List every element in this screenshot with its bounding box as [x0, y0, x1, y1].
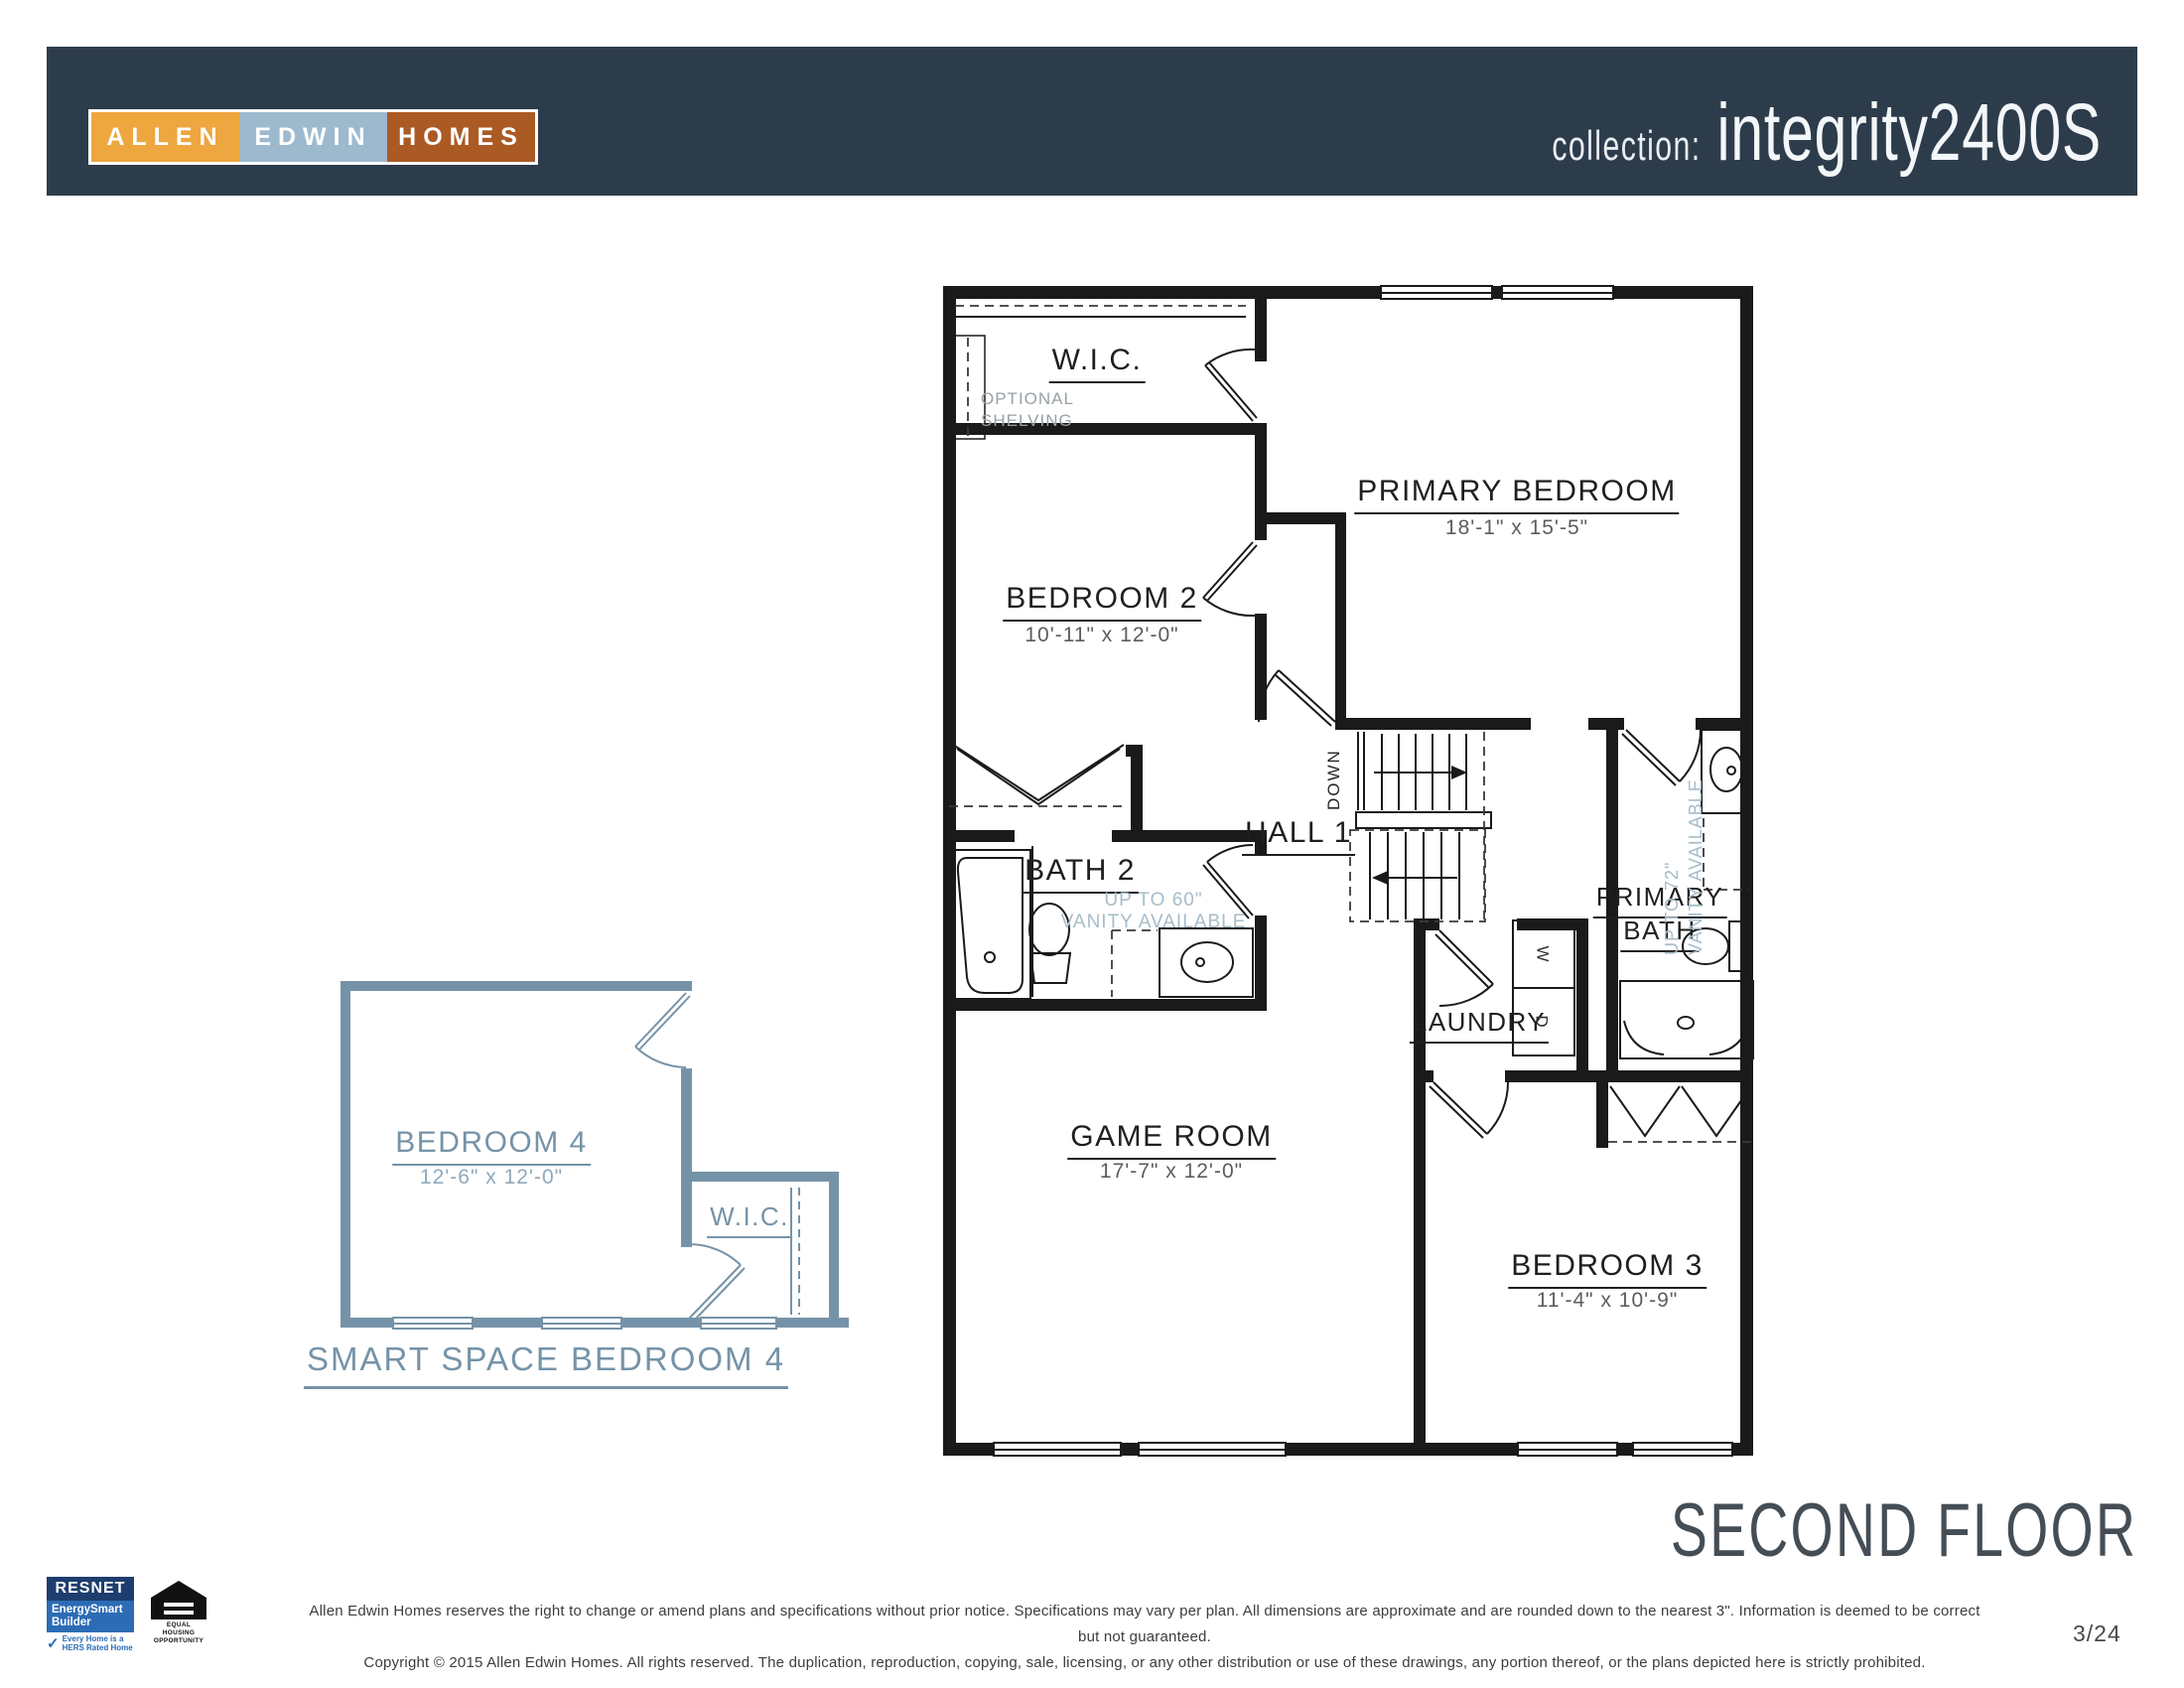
resnet-tag2: HERS Rated Home	[63, 1643, 133, 1652]
smart-space-wall	[829, 1182, 839, 1318]
bath2-tub-inner	[958, 858, 1023, 993]
wall	[1131, 745, 1143, 842]
wall	[943, 286, 956, 1456]
wall	[1596, 1082, 1608, 1148]
washer-label: W	[1533, 945, 1553, 962]
wall	[1414, 1070, 1433, 1082]
wall	[1255, 614, 1267, 720]
room-label-game-room: GAME ROOM	[1067, 1120, 1276, 1160]
wall	[943, 830, 1015, 842]
bath2-vanity-note-line2: VANITY AVAILABLE	[1061, 912, 1247, 933]
equal-housing-logo: EQUAL HOUSING OPPORTUNITY	[151, 1581, 206, 1645]
bath2-tub	[950, 850, 1030, 999]
page-number: 3/24	[2073, 1620, 2121, 1647]
equal-bar	[164, 1611, 194, 1615]
bath2-vanity-note-line1: UP TO 60"	[1104, 890, 1202, 912]
room-label-smart-wic: W.I.C.	[707, 1201, 792, 1238]
room-label-bedroom4: BEDROOM 4	[392, 1126, 591, 1166]
primary-bath-vanity-note-line2: VANITY AVAILABLE	[1686, 767, 1706, 955]
bedroom3-closet-doors	[1610, 1086, 1751, 1136]
room-label-primary-bedroom: PRIMARY BEDROOM	[1354, 475, 1679, 514]
equal-housing-icon-body	[151, 1598, 206, 1619]
wall	[1576, 930, 1588, 1070]
equal-housing-line2: OPPORTUNITY	[154, 1637, 204, 1644]
window	[1138, 1442, 1287, 1457]
wall	[1335, 718, 1486, 730]
bath2-tub-drain	[985, 952, 995, 962]
floor-plan-fixtures	[0, 0, 2184, 1688]
disclaimer-line2: Copyright © 2015 Allen Edwin Homes. All …	[304, 1650, 1985, 1676]
door-primary-bedroom	[1259, 670, 1335, 726]
door-smart-wic	[689, 1244, 745, 1322]
smart-space-window	[700, 1317, 777, 1330]
window	[993, 1442, 1122, 1457]
window	[1380, 285, 1493, 300]
room-dims-primary-bedroom: 18'-1" x 15'-5"	[1445, 516, 1588, 540]
door-bedroom3	[1430, 1082, 1508, 1138]
door-bath2	[1203, 845, 1253, 918]
equal-housing-text: EQUAL HOUSING OPPORTUNITY	[151, 1621, 206, 1645]
room-dims-bedroom4: 12'-6" x 12'-0"	[420, 1166, 563, 1190]
wall	[1255, 915, 1267, 1001]
primary-bath-shower-curves	[1624, 1021, 1749, 1055]
bath2-optional-vanity	[1112, 930, 1158, 997]
wall	[1414, 1082, 1426, 1456]
equal-housing-icon	[151, 1581, 206, 1598]
bath2-faucet	[1196, 958, 1204, 966]
smart-space-wall	[681, 1068, 692, 1174]
primary-bath-shower-drain	[1678, 1017, 1694, 1029]
bath2-toilet-tank	[1030, 953, 1070, 983]
footer-disclaimer: Allen Edwin Homes reserves the right to …	[304, 1599, 1985, 1676]
window	[1632, 1442, 1733, 1457]
room-dims-game-room: 17'-7" x 12'-0"	[1100, 1160, 1243, 1184]
stairs-down-label: DOWN	[1324, 739, 1344, 810]
dryer-label: D	[1532, 1015, 1552, 1028]
smart-space-window	[541, 1317, 622, 1330]
wall	[1505, 1070, 1753, 1082]
floor-plan: W.I.C. OPTIONAL SHELVING PRIMARY BEDROOM…	[0, 0, 2184, 1688]
room-dims-bedroom2: 10'-11" x 12'-0"	[1024, 624, 1178, 647]
equal-bar	[164, 1603, 194, 1607]
resnet-subtitle: EnergySmart Builder	[47, 1601, 134, 1632]
wall	[1486, 718, 1531, 730]
stairs-upper-rail	[1358, 732, 1364, 810]
checkmark-icon: ✓	[47, 1634, 60, 1652]
room-label-wic: W.I.C.	[1049, 344, 1146, 383]
wall	[1740, 286, 1753, 1456]
disclaimer-line1: Allen Edwin Homes reserves the right to …	[304, 1599, 1985, 1650]
smart-space-wall	[341, 981, 350, 1328]
wall	[1255, 286, 1267, 361]
wall	[1517, 918, 1588, 930]
stairs-landing	[1356, 812, 1491, 828]
door-wic	[1205, 350, 1257, 421]
smart-space-wall	[681, 1172, 839, 1182]
stairs-down-arrowhead	[1451, 766, 1467, 779]
stairs-lower-outline	[1350, 830, 1485, 921]
floor-title: SECOND FLOOR	[1671, 1487, 2137, 1574]
wall	[1414, 918, 1426, 1070]
smart-space-window	[392, 1317, 474, 1330]
wall	[943, 286, 1753, 299]
stairs-lower-treads	[1370, 832, 1459, 919]
room-label-bedroom3: BEDROOM 3	[1508, 1249, 1706, 1289]
primary-bath-faucet	[1727, 767, 1735, 774]
bath2-vanity	[1160, 928, 1253, 997]
wall	[1255, 512, 1346, 524]
wall	[1335, 512, 1346, 730]
door-bedroom2	[1203, 542, 1257, 616]
optional-shelving-note-line2: SHELVING	[981, 411, 1073, 431]
door-laundry	[1435, 930, 1493, 1006]
primary-bath-vanity-note-line1: UP TO 72"	[1662, 767, 1683, 955]
room-label-hall1: HALL 1	[1242, 816, 1355, 856]
resnet-tag-text: Every Home is a HERS Rated Home	[63, 1634, 133, 1652]
primary-bath-sink	[1710, 748, 1742, 791]
room-label-primary-bath-line1: PRIMARY	[1593, 882, 1727, 918]
room-label-laundry: LAUNDRY	[1410, 1007, 1549, 1044]
resnet-sub2: Builder	[52, 1617, 129, 1629]
resnet-logo: RESNET EnergySmart Builder ✓ Every Home …	[47, 1577, 134, 1652]
window	[1517, 1442, 1618, 1457]
window	[1501, 285, 1614, 300]
smart-space-caption: SMART SPACE BEDROOM 4	[304, 1340, 788, 1389]
smart-space-wall	[681, 1182, 692, 1247]
primary-bath-shower	[1620, 981, 1753, 1058]
stairs-up-arrowhead	[1372, 871, 1388, 885]
stairs-upper-treads	[1382, 734, 1466, 810]
door-bedroom4	[635, 993, 690, 1067]
smart-space-wall	[341, 981, 692, 991]
room-label-bedroom2: BEDROOM 2	[1003, 582, 1201, 622]
room-label-bath2: BATH 2	[1022, 854, 1139, 894]
bath2-sink	[1181, 942, 1233, 982]
bedroom2-closet-doors	[953, 745, 1124, 804]
resnet-tag1: Every Home is a	[63, 1634, 124, 1643]
wall	[943, 999, 1267, 1011]
equal-housing-line1: EQUAL HOUSING	[163, 1621, 195, 1636]
resnet-tagline: ✓ Every Home is a HERS Rated Home	[47, 1632, 134, 1652]
room-dims-bedroom3: 11'-4" x 10'-9"	[1537, 1289, 1679, 1313]
resnet-sub1: EnergySmart	[52, 1604, 129, 1617]
optional-shelving-note-line1: OPTIONAL	[981, 389, 1074, 409]
resnet-title: RESNET	[47, 1577, 134, 1601]
wall	[1696, 718, 1753, 730]
